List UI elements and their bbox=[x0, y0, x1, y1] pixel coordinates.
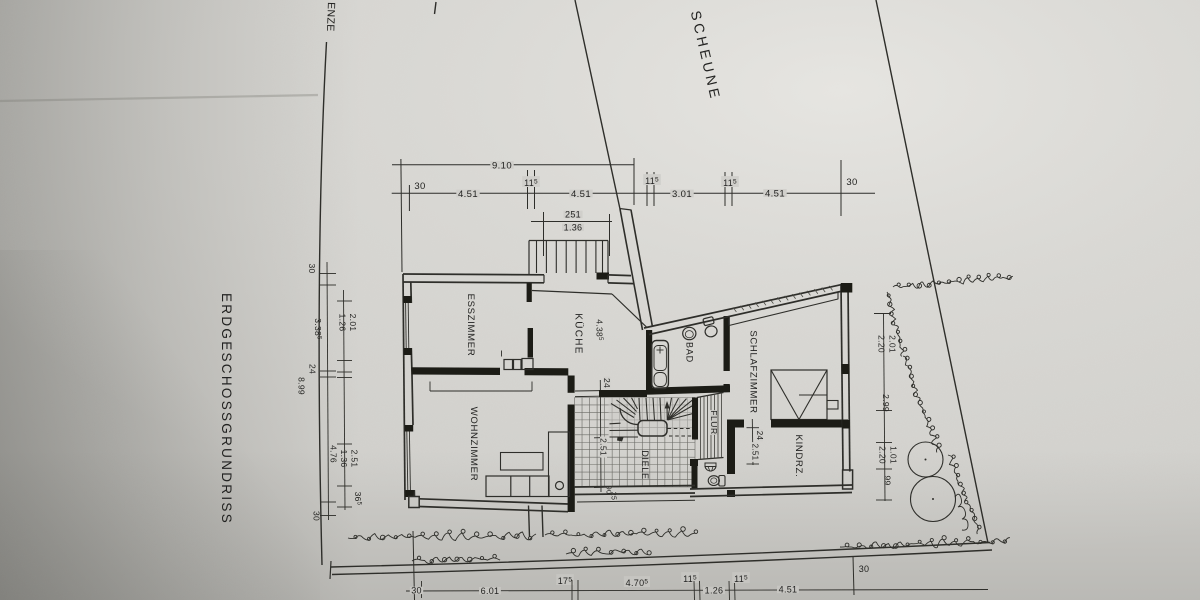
svg-text:8.99: 8.99 bbox=[297, 377, 307, 395]
svg-text:99: 99 bbox=[883, 475, 893, 485]
svg-text:1.36: 1.36 bbox=[564, 223, 583, 233]
svg-text:30: 30 bbox=[859, 564, 870, 574]
svg-text:ERDGESCHOSSGRUNDRISS: ERDGESCHOSSGRUNDRISS bbox=[219, 293, 234, 525]
svg-text:24: 24 bbox=[755, 431, 764, 441]
svg-text:WOHNZIMMER: WOHNZIMMER bbox=[468, 407, 479, 482]
svg-text:ESSZIMMER: ESSZIMMER bbox=[465, 294, 476, 357]
svg-text:4.51: 4.51 bbox=[765, 188, 785, 199]
svg-text:4.51: 4.51 bbox=[458, 189, 478, 200]
svg-text:KÜCHE: KÜCHE bbox=[573, 313, 585, 355]
svg-text:24: 24 bbox=[308, 364, 318, 374]
svg-text:2.01: 2.01 bbox=[348, 314, 358, 332]
svg-text:4.76: 4.76 bbox=[329, 445, 339, 463]
svg-text:2.51: 2.51 bbox=[350, 450, 360, 468]
svg-text:30: 30 bbox=[846, 177, 857, 188]
svg-text:9.10: 9.10 bbox=[492, 160, 512, 171]
svg-text:KINDRZ.: KINDRZ. bbox=[793, 435, 804, 478]
svg-text:25: 25 bbox=[610, 492, 617, 500]
svg-text:1.26: 1.26 bbox=[338, 314, 348, 332]
svg-text:30: 30 bbox=[307, 263, 317, 273]
svg-text:4.51: 4.51 bbox=[571, 189, 591, 200]
svg-text:FLUR: FLUR bbox=[709, 410, 719, 435]
svg-text:3.01: 3.01 bbox=[672, 189, 692, 200]
svg-text:BAD: BAD bbox=[685, 342, 695, 363]
svg-text:1.26: 1.26 bbox=[705, 586, 724, 596]
svg-text:30: 30 bbox=[414, 181, 425, 192]
svg-text:2.51: 2.51 bbox=[599, 438, 609, 456]
svg-text:2.20: 2.20 bbox=[878, 446, 888, 464]
svg-text:24: 24 bbox=[602, 378, 612, 388]
svg-text:4.51: 4.51 bbox=[779, 585, 798, 595]
svg-text:30: 30 bbox=[411, 586, 422, 596]
svg-text:2.99: 2.99 bbox=[881, 394, 891, 412]
svg-text:1.36: 1.36 bbox=[339, 450, 349, 468]
svg-text:2.20: 2.20 bbox=[877, 335, 887, 353]
svg-text:2.01: 2.01 bbox=[888, 335, 898, 353]
svg-text:ENZE: ENZE bbox=[324, 2, 337, 32]
svg-text:251: 251 bbox=[565, 210, 581, 220]
svg-text:DIELE: DIELE bbox=[640, 450, 650, 480]
svg-text:6.01: 6.01 bbox=[481, 586, 500, 596]
svg-text:1.01: 1.01 bbox=[889, 446, 899, 464]
svg-text:2.51: 2.51 bbox=[750, 444, 759, 461]
svg-text:30: 30 bbox=[312, 511, 322, 521]
svg-text:SCHLAFZIMMER: SCHLAFZIMMER bbox=[748, 330, 759, 413]
